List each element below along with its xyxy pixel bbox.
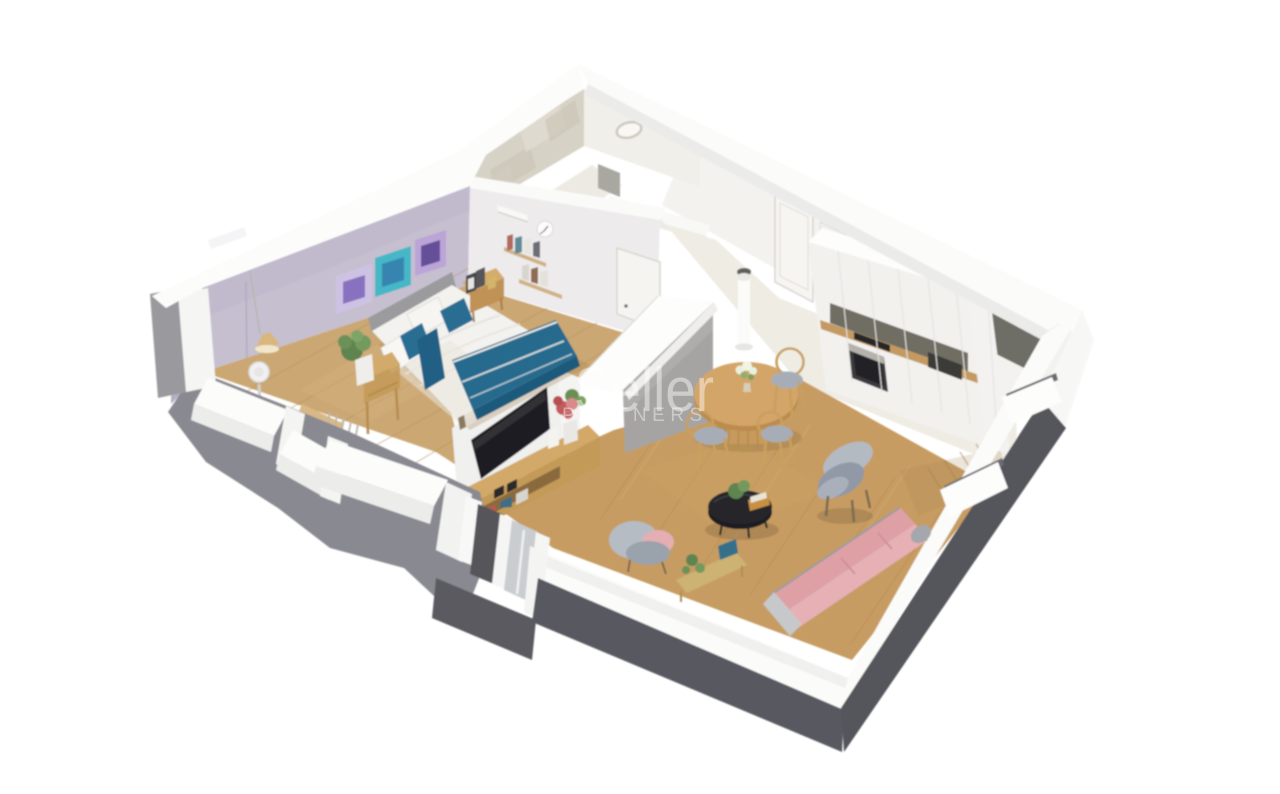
svg-text:PARTNERS: PARTNERS <box>562 405 708 426</box>
